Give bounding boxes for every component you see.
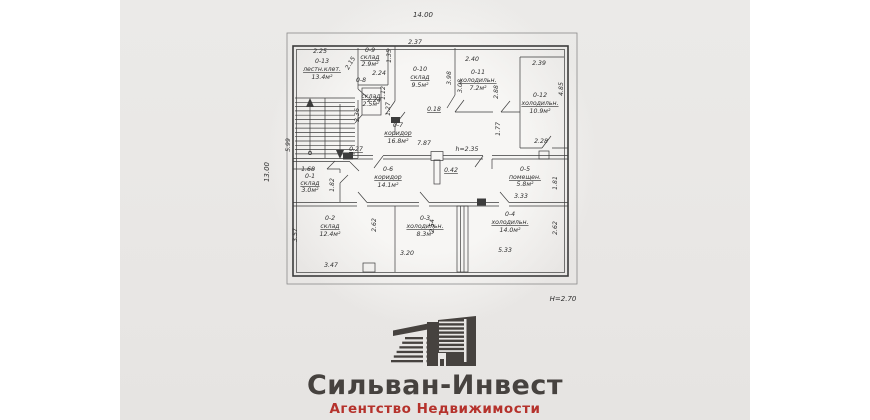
dim-5-99: 5.99 [285, 138, 292, 152]
room-0-13-label: 0-13 лестн.клет. 13.4м² [302, 58, 341, 81]
room-name: склад [300, 180, 319, 187]
dim-2-62a: 2.62 [371, 218, 378, 232]
dim-2-24b: 2.24 [367, 97, 381, 104]
room-0-9-label: 0-9 склад 2.9м² [360, 47, 379, 68]
room-name: лестн.клет. [302, 66, 341, 73]
dim-3-98: 3.98 [446, 71, 453, 85]
room-name: склад [320, 223, 339, 230]
dim-1-12: 1.12 [380, 86, 387, 100]
dim-7-87: 7.87 [417, 140, 431, 147]
room-0-12-label: 0-12 холодильн. 10.9м² [520, 92, 558, 115]
dim-h-2-35: h=2.35 [456, 146, 479, 153]
room-0-11-label: 0-11 холодильн. 7.2м² [458, 69, 496, 92]
dim-3-36: 3.36 [354, 108, 361, 122]
stair-down-arrow [336, 150, 344, 159]
dim-2-28: 2.28 [534, 138, 548, 145]
logo-building-icon [383, 316, 488, 368]
room-0-1-label: 0-1 склад 3.0м² [300, 173, 319, 194]
room-name: склад [360, 54, 379, 61]
overall-width-label: 14.00 [413, 11, 434, 19]
room-name: коридор [374, 174, 402, 181]
room-name: холодильн. [490, 219, 528, 226]
room-name: холодильн. [520, 100, 558, 107]
room-area: 7.2м² [470, 85, 488, 92]
room-name: холодильн. [405, 223, 443, 230]
dim-1-77: 1.77 [495, 122, 502, 136]
agency-logo: Сильван-Инвест Агентство Недвижимости [120, 316, 750, 417]
room-0-5-label: 0-5 помещен. 5.8м² [509, 166, 541, 188]
interior-walls [293, 46, 568, 272]
room-name: помещен. [509, 174, 541, 181]
dim-2-39: 2.39 [532, 60, 546, 67]
room-id: 0-5 [520, 166, 530, 173]
room-id: 0-8 [356, 77, 366, 84]
dim-2-15: 2.15 [344, 55, 357, 70]
exterior-walls [293, 46, 568, 276]
logo-subtitle: Агентство Недвижимости [120, 401, 750, 417]
room-area: 16.8м² [388, 138, 409, 145]
dim-2-54: 2.54 [429, 219, 436, 233]
room-id: 0-1 [305, 173, 315, 180]
room-0-3-label: 0-3 холодильн. 8.3м² [405, 215, 443, 238]
dim-2-37: 2.37 [408, 39, 422, 46]
floor-plan-drawing: 14.00 13.00 H=2.70 0-13 лестн.клет. 13.4… [255, 5, 590, 305]
dim-1-82: 1.82 [329, 178, 336, 192]
dim-0-18: 0.18 [427, 106, 441, 113]
room-0-10-label: 0-10 склад 9.5м² [410, 66, 429, 89]
dim-0-27: 0.27 [349, 146, 363, 153]
dim-4-85: 4.85 [558, 82, 565, 96]
room-name: коридор [384, 130, 412, 137]
room-id: 0-7 [393, 122, 403, 129]
dim-1-27: 1.27 [385, 102, 392, 116]
room-area: 5.8м² [517, 181, 535, 188]
dim-1-81: 1.81 [552, 176, 559, 190]
wall-piers [343, 117, 486, 206]
room-id: 0-12 [533, 92, 547, 99]
room-id: 0-13 [315, 58, 329, 65]
dim-2-88: 2.88 [493, 85, 500, 99]
room-id: 0-4 [505, 211, 515, 218]
dim-1-35: 1.35 [386, 49, 393, 63]
room-area: 14.0м² [500, 227, 521, 234]
dim-2-62b: 2.62 [552, 221, 559, 235]
dim-2-40: 2.40 [465, 56, 479, 63]
room-name: холодильн. [458, 77, 496, 84]
room-0-6-label: 0-6 коридор 14.1м² [374, 166, 402, 189]
dim-3-08: 3.08 [457, 79, 464, 93]
room-area: 10.9м² [530, 108, 551, 115]
ceiling-height-label: H=2.70 [550, 295, 577, 303]
dim-2-25: 2.25 [313, 48, 327, 55]
room-id: 0-10 [413, 66, 427, 73]
dim-1-68: 1.68 [301, 166, 315, 173]
overall-depth-label: 13.00 [263, 161, 271, 182]
room-0-4-label: 0-4 холодильн. 14.0м² [490, 211, 528, 234]
room-area: 9.5м² [412, 82, 430, 89]
logo-title: Сильван-Инвест [120, 372, 750, 400]
room-name: склад [410, 74, 429, 81]
room-0-2-label: 0-2 склад 12.4м² [320, 215, 341, 238]
room-area: 13.4м² [312, 74, 333, 81]
dim-2-24a: 2.24 [372, 70, 386, 77]
room-id: 0-9 [365, 47, 375, 54]
staircase [295, 98, 355, 159]
dim-0-42: 0.42 [444, 167, 458, 174]
room-area: 12.4м² [320, 231, 341, 238]
dim-3-20: 3.20 [400, 250, 414, 257]
room-area: 3.0м² [302, 187, 320, 194]
room-area: 2.9м² [362, 61, 380, 68]
dim-3-33: 3.33 [514, 193, 528, 200]
dim-5-33: 5.33 [498, 247, 512, 254]
dim-3-57: 3.57 [292, 228, 299, 242]
room-0-7-label: 0-7 коридор 16.8м² [384, 122, 412, 145]
room-id: 0-11 [471, 69, 485, 76]
dim-3-47: 3.47 [324, 262, 338, 269]
room-id: 0-2 [325, 215, 335, 222]
room-id: 0-6 [383, 166, 393, 173]
room-area: 14.1м² [378, 182, 399, 189]
